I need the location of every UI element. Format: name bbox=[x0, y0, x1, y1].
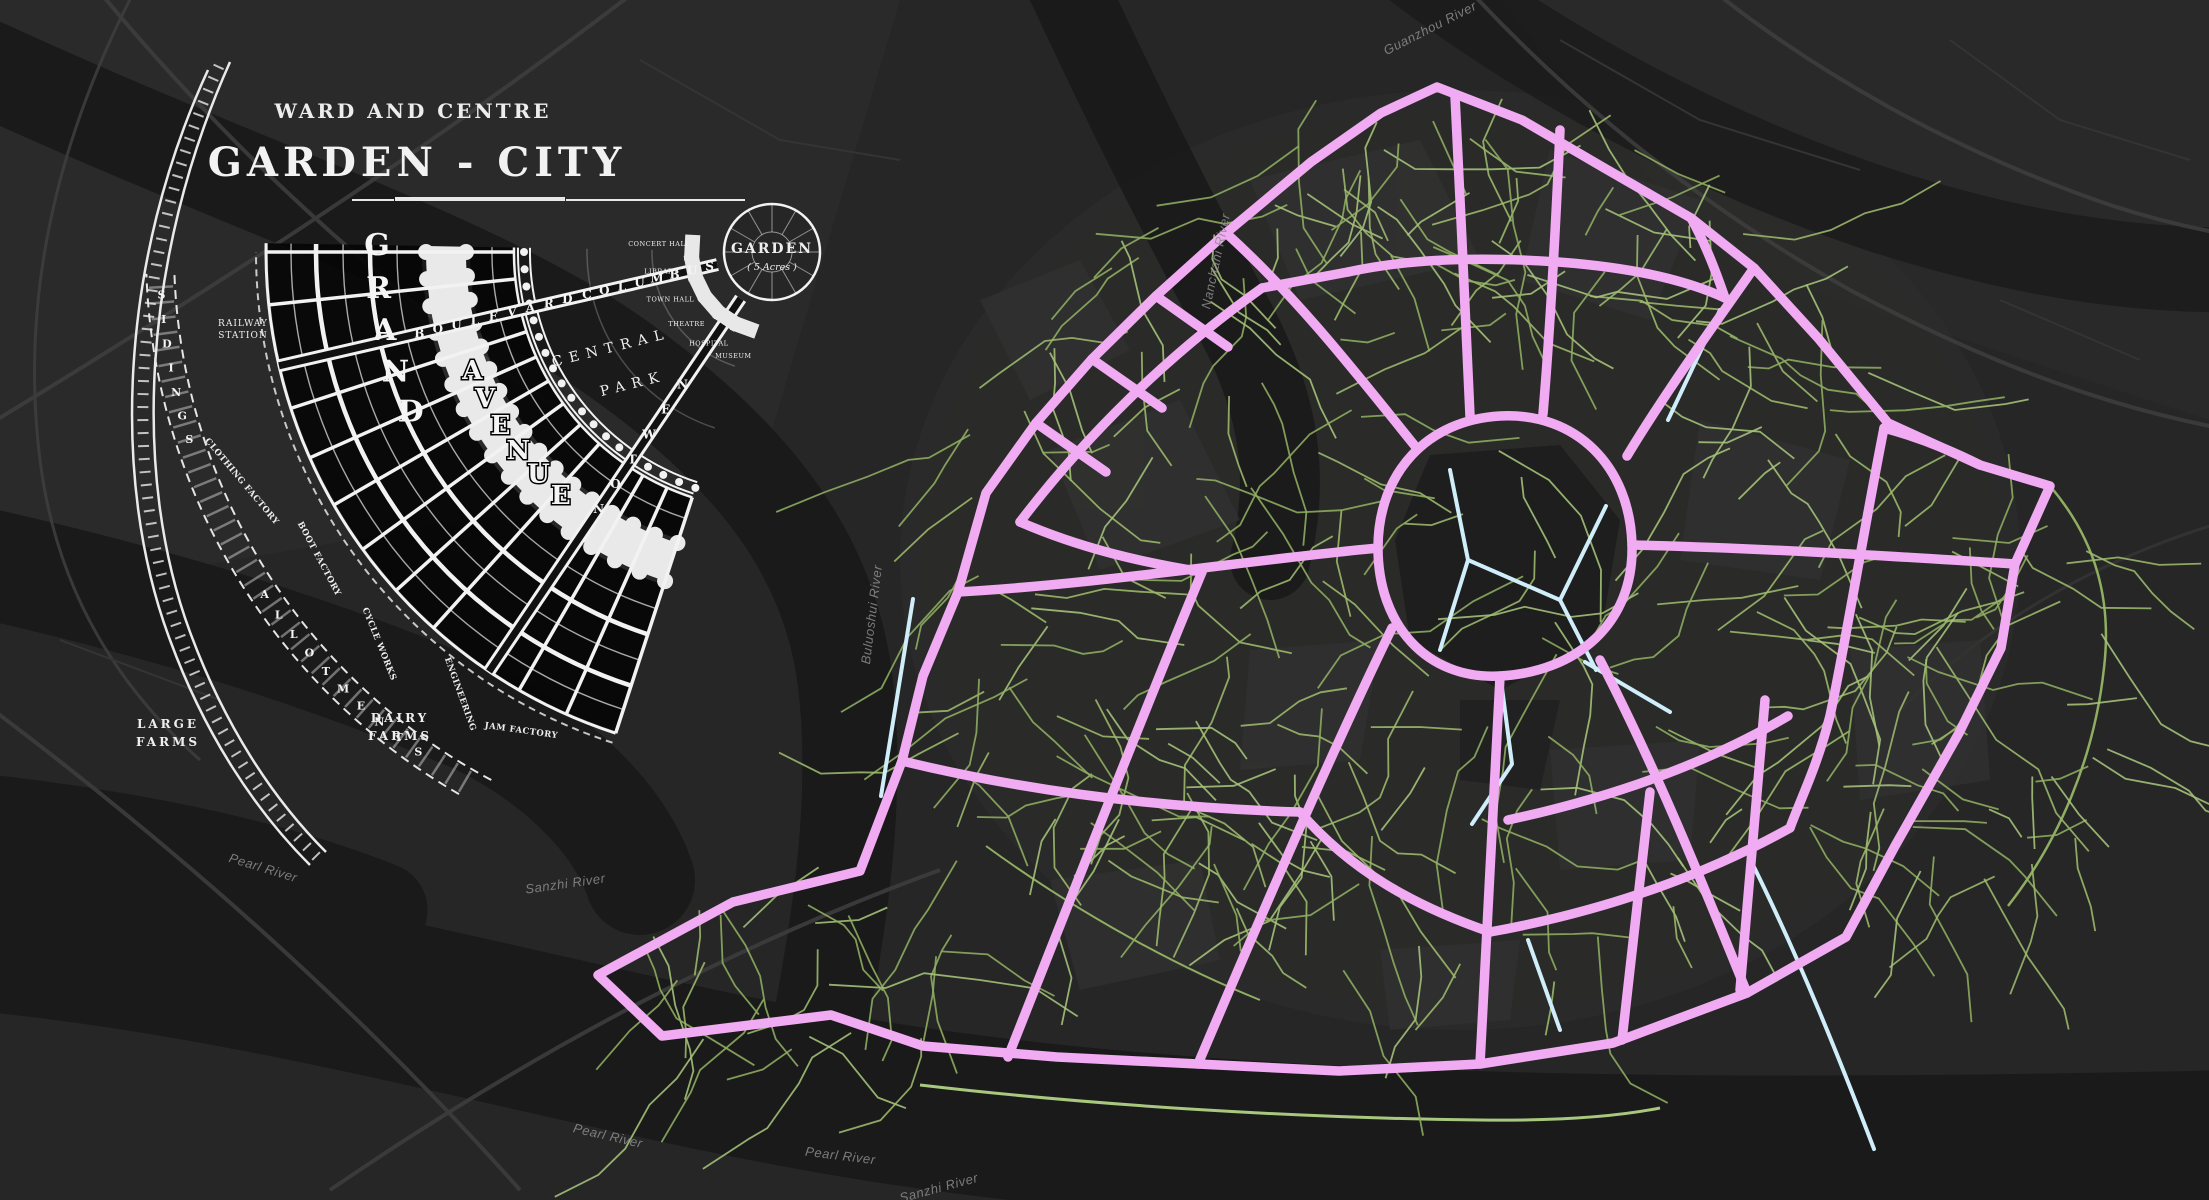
diagram-street-letter: C bbox=[582, 288, 592, 302]
crystal-palace-bump bbox=[644, 463, 652, 471]
map-canvas[interactable]: WARD AND CENTRE GARDEN - CITY MUSEUMHOSP… bbox=[0, 0, 2209, 1200]
crystal-palace-bump bbox=[567, 394, 575, 402]
diagram-street-letter: A bbox=[525, 301, 536, 315]
civic-building-label: THEATRE bbox=[668, 320, 705, 328]
diagram-street-letter: B bbox=[669, 267, 679, 281]
diagram-street-letter: N bbox=[382, 354, 409, 389]
crystal-palace-bump bbox=[521, 265, 529, 273]
diagram-street-letter: O bbox=[599, 284, 609, 298]
avenue-scallop bbox=[419, 271, 435, 287]
avenue-scallop bbox=[422, 298, 438, 314]
diagram-street-letter: E bbox=[357, 699, 365, 712]
diagram-street-letter: E bbox=[551, 481, 571, 511]
avenue-scallop bbox=[456, 401, 472, 417]
diagram-street-letter: R bbox=[544, 297, 555, 311]
diagram-street-letter: U bbox=[687, 263, 698, 277]
crystal-palace-bump bbox=[691, 484, 699, 492]
title-underline bbox=[352, 199, 745, 200]
crystal-palace-bump bbox=[535, 333, 543, 341]
diagram-street-letter: W bbox=[641, 427, 656, 441]
diagram-street-letter: D bbox=[398, 394, 424, 429]
diagram-street-letter: U bbox=[527, 460, 550, 490]
crystal-palace-bump bbox=[675, 478, 683, 486]
diagram-street-letter: M bbox=[650, 272, 663, 286]
crystal-palace-bump bbox=[590, 420, 598, 428]
diagram-street-letter: A bbox=[372, 313, 397, 348]
avenue-scallop bbox=[607, 552, 623, 568]
diagram-street-letter: E bbox=[489, 309, 498, 323]
diagram-label: FARMS bbox=[136, 735, 200, 749]
civic-building-label: MUSEUM bbox=[715, 352, 751, 360]
diagram-street-letter: G bbox=[364, 228, 390, 263]
diagram-street-letter: O bbox=[610, 477, 620, 491]
avenue-scallop bbox=[519, 489, 535, 505]
diagram-street-letter: E bbox=[661, 403, 670, 417]
avenue-scallop bbox=[459, 268, 475, 284]
diagram-label: LARGE bbox=[137, 717, 199, 731]
diagram-street-letter: N bbox=[171, 386, 181, 399]
diagram-street-letter: A bbox=[259, 588, 269, 601]
diagram-street-letter: O bbox=[305, 647, 315, 660]
diagram-street-letter: U bbox=[634, 276, 645, 290]
civic-building-label: CONCERT HALL bbox=[628, 240, 690, 248]
diagram-street-letter: B bbox=[414, 326, 424, 340]
diagram-street-letter: N bbox=[593, 502, 604, 516]
diagram-label: STATION bbox=[218, 331, 268, 341]
diagram-street-letter: L bbox=[618, 280, 627, 294]
diagram-street-letter: O bbox=[433, 322, 443, 336]
inset-title-line2: GARDEN - CITY bbox=[208, 139, 627, 186]
crystal-palace-bump bbox=[615, 443, 623, 451]
avenue-scallop bbox=[548, 460, 564, 476]
diagram-street-letter: L bbox=[290, 628, 298, 641]
diagram-label: FARMS bbox=[368, 729, 432, 743]
diagram-street-letter: U bbox=[451, 318, 462, 332]
diagram-street-letter: S bbox=[158, 289, 166, 302]
diagram-street-letter: S bbox=[185, 433, 193, 446]
diagram-street-letter: A bbox=[461, 356, 483, 386]
civic-building-label: TOWN HALL bbox=[647, 296, 695, 304]
crystal-palace-bump bbox=[602, 432, 610, 440]
diagram-street-letter: S bbox=[705, 259, 714, 273]
civic-building-label: HOSPITAL bbox=[689, 340, 729, 348]
diagram-label: DAIRY bbox=[371, 711, 430, 725]
diagram-street-letter: M bbox=[337, 683, 349, 696]
diagram-street-letter: L bbox=[471, 314, 480, 328]
diagram-street-letter: L bbox=[275, 608, 283, 621]
crystal-palace-bump bbox=[520, 248, 528, 256]
crystal-palace-bump bbox=[558, 379, 566, 387]
inset-title-line1: WARD AND CENTRE bbox=[274, 99, 552, 123]
diagram-street-letter: T bbox=[322, 665, 331, 678]
crystal-palace-bump bbox=[541, 349, 549, 357]
diagram-street-letter: D bbox=[162, 338, 172, 351]
diagram-street-letter: R bbox=[366, 271, 392, 306]
diagram-street-letter: T bbox=[628, 452, 637, 466]
diagram-street-letter: D bbox=[562, 292, 572, 306]
diagram-street-letter: V bbox=[474, 384, 496, 414]
crystal-palace-bump bbox=[530, 316, 538, 324]
avenue-scallop bbox=[462, 292, 478, 308]
diagram-street-letter: V bbox=[506, 305, 517, 319]
diagram-label: GARDEN bbox=[731, 241, 813, 257]
avenue-scallop bbox=[625, 517, 641, 533]
diagram-label: ( 5 Acres ) bbox=[747, 262, 797, 273]
diagram-label: RAILWAY bbox=[218, 319, 268, 329]
map-stage: WARD AND CENTRE GARDEN - CITY MUSEUMHOSP… bbox=[0, 0, 2209, 1200]
diagram-street-letter: N bbox=[677, 378, 688, 392]
diagram-street-letter: I bbox=[168, 362, 173, 375]
crystal-palace-bump bbox=[578, 407, 586, 415]
diagram-street-letter: I bbox=[161, 313, 166, 326]
crystal-palace-bump bbox=[659, 471, 667, 479]
crystal-palace-bump bbox=[522, 283, 530, 291]
diagram-street-letter: G bbox=[178, 410, 187, 423]
diagram-street-letter: S bbox=[414, 745, 422, 758]
